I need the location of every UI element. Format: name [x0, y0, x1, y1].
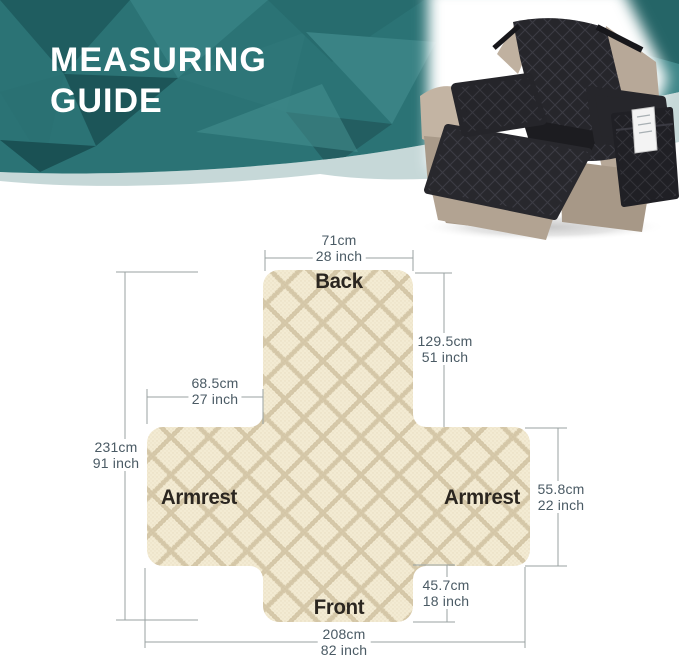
measure-front-height-inch: 18 inch [422, 593, 469, 609]
measuring-guide-infographic: MEASURING GUIDE [0, 0, 679, 655]
measure-front-height-cm: 45.7cm [422, 577, 469, 593]
measure-total-width: 208cm 82 inch [318, 626, 371, 655]
label-armrest-right: Armrest [444, 486, 520, 510]
measure-back-width-cm: 71cm [316, 232, 363, 248]
label-armrest-left: Armrest [161, 486, 237, 510]
measure-back-width: 71cm 28 inch [313, 232, 366, 264]
quilted-cover-shape [147, 270, 530, 622]
measure-armrest-length-cm: 68.5cm [191, 375, 238, 391]
page-title: MEASURING GUIDE [50, 40, 360, 122]
measure-armrest-height-inch: 22 inch [537, 497, 584, 513]
measure-armrest-height: 55.8cm 22 inch [534, 481, 587, 513]
label-back: Back [315, 270, 363, 294]
label-front: Front [314, 596, 365, 620]
measure-armrest-height-cm: 55.8cm [537, 481, 584, 497]
measure-armrest-length: 68.5cm 27 inch [188, 375, 241, 407]
measure-total-length: 231cm 91 inch [90, 439, 143, 471]
measure-back-width-inch: 28 inch [316, 248, 363, 264]
measure-total-width-cm: 208cm [321, 626, 368, 642]
measure-back-height-cm: 129.5cm [417, 333, 472, 349]
measure-back-height-inch: 51 inch [417, 349, 472, 365]
measure-front-height: 45.7cm 18 inch [419, 577, 472, 609]
measure-total-length-inch: 91 inch [93, 455, 140, 471]
measure-total-length-cm: 231cm [93, 439, 140, 455]
measure-back-height: 129.5cm 51 inch [414, 333, 475, 365]
measure-armrest-length-inch: 27 inch [191, 391, 238, 407]
measure-total-width-inch: 82 inch [321, 642, 368, 655]
